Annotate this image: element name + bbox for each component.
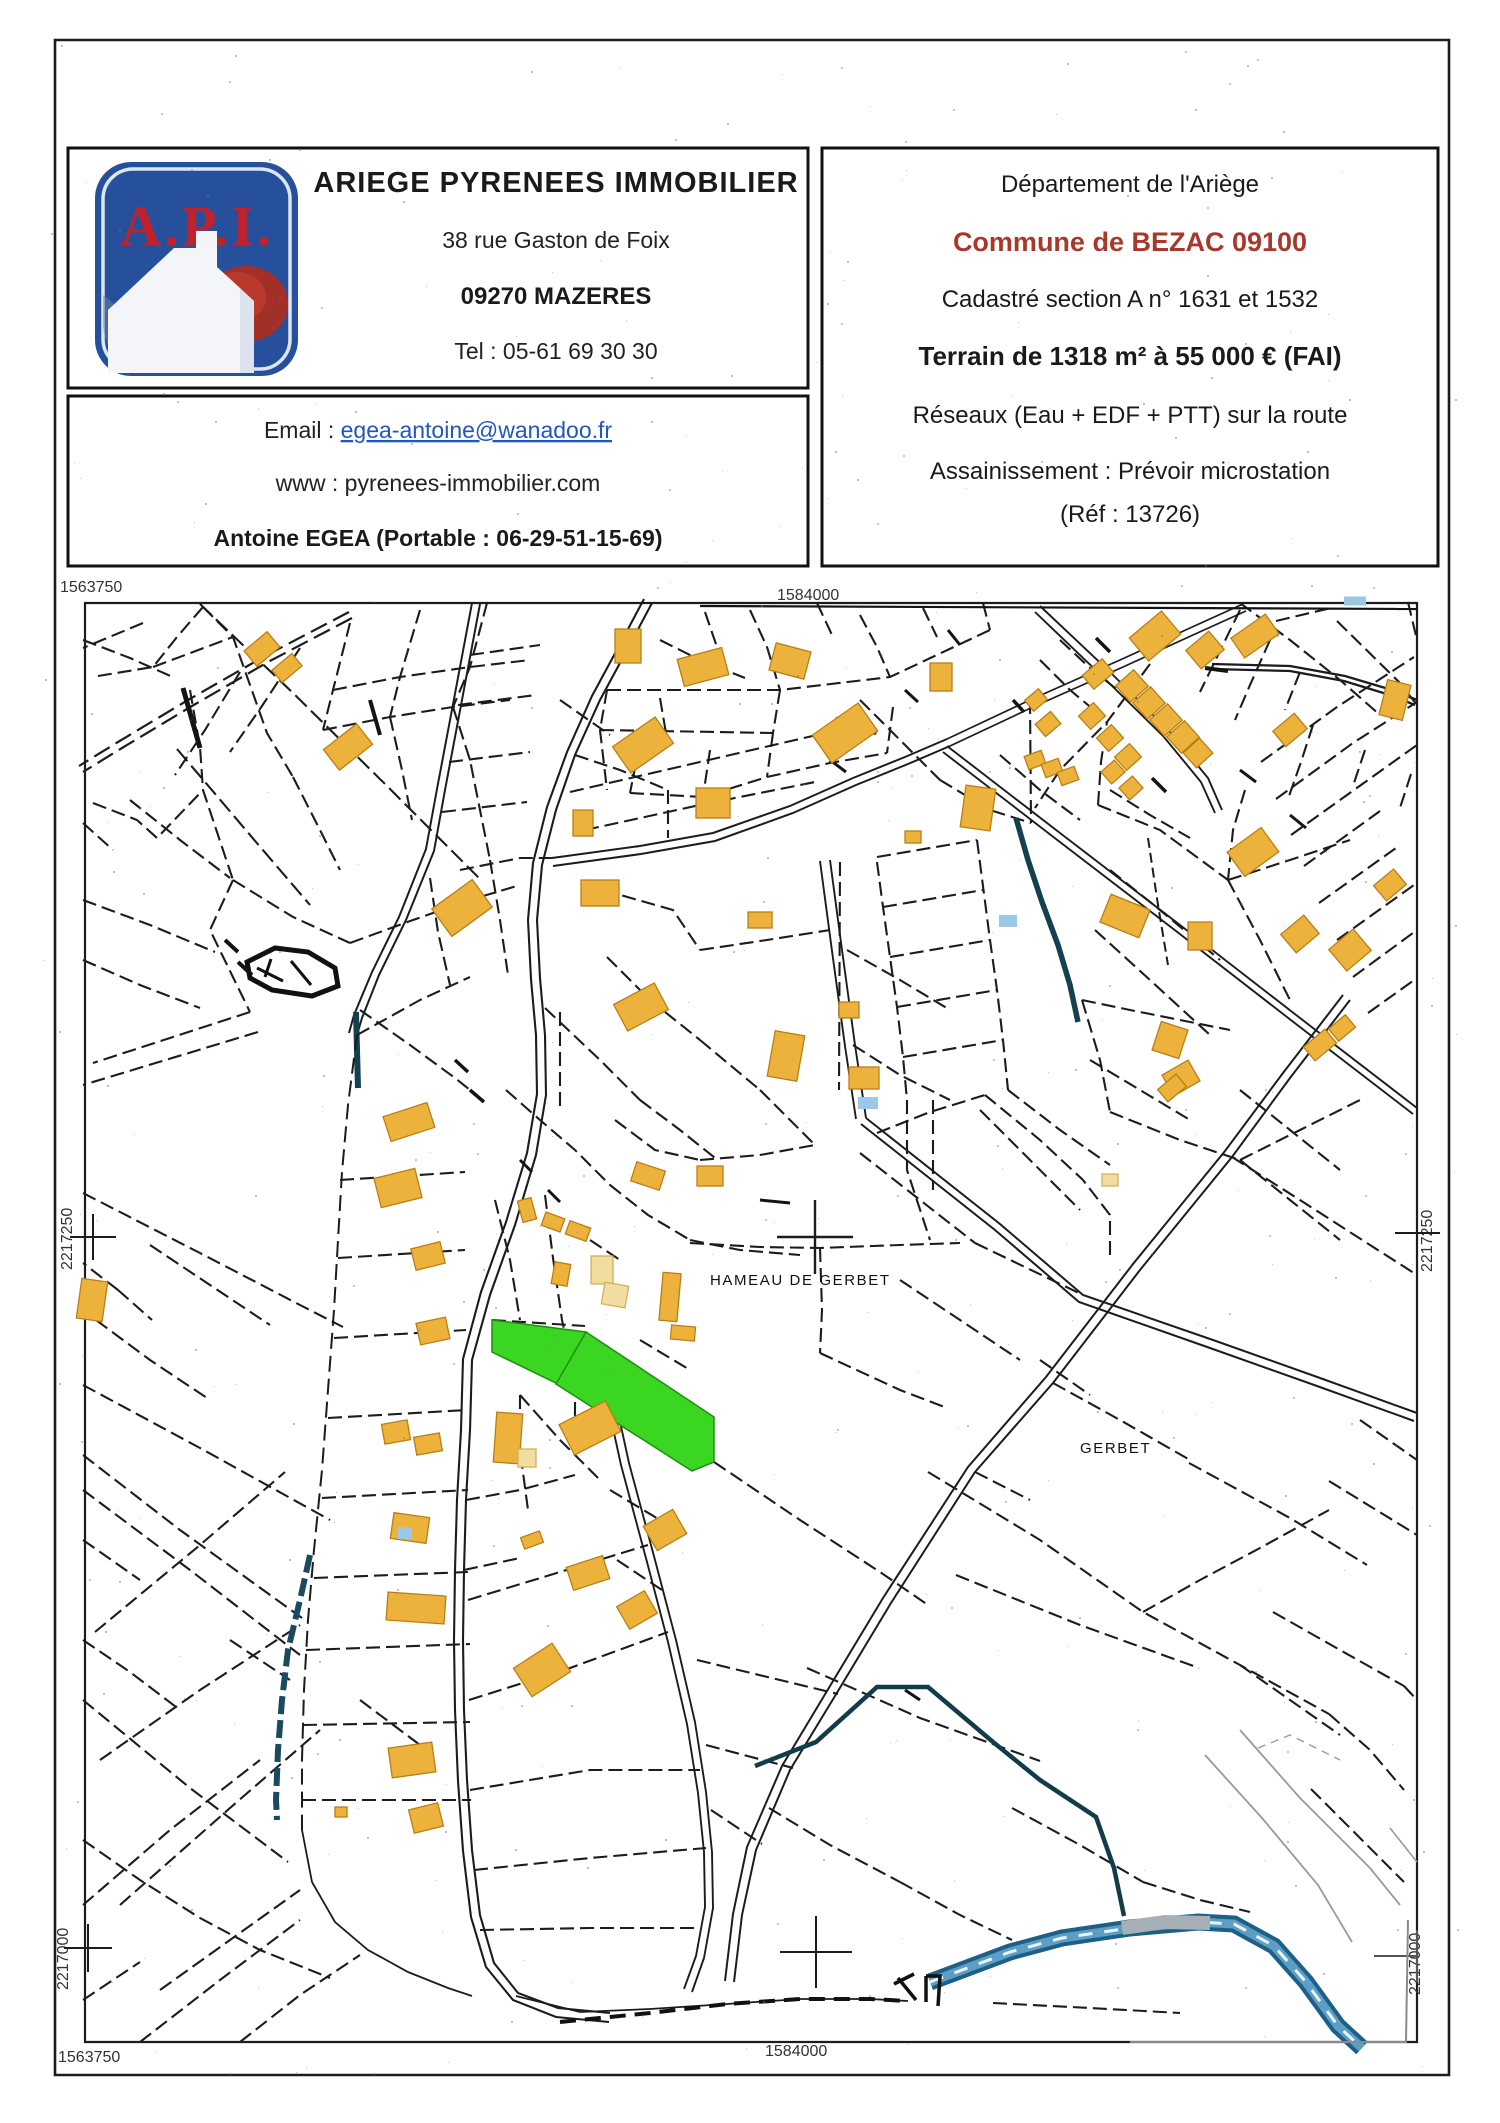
- svg-text:(Réf : 13726): (Réf : 13726): [1060, 501, 1200, 528]
- svg-text:Antoine EGEA (Portable : 06-29: Antoine EGEA (Portable : 06-29-51-15-69): [213, 525, 662, 551]
- svg-text:09270 MAZERES: 09270 MAZERES: [461, 283, 652, 310]
- svg-text:GERBET: GERBET: [1080, 1440, 1151, 1457]
- svg-text:38 rue Gaston de Foix: 38 rue Gaston de Foix: [442, 227, 670, 253]
- svg-text:Terrain de 1318 m² à 55 000 €: Terrain de 1318 m² à 55 000 € (FAI): [919, 341, 1342, 371]
- svg-text:Département de l'Ariège: Département de l'Ariège: [1001, 171, 1259, 198]
- svg-text:2217250: 2217250: [1419, 1210, 1436, 1272]
- svg-text:Email : egea-antoine@wanadoo.f: Email : egea-antoine@wanadoo.fr: [264, 417, 612, 443]
- svg-text:HAMEAU DE GERBET: HAMEAU DE GERBET: [710, 1272, 891, 1289]
- svg-text:2217000: 2217000: [55, 1928, 72, 1990]
- svg-text:www : pyrenees-immobilier.com: www : pyrenees-immobilier.com: [275, 470, 601, 496]
- svg-text:1584000: 1584000: [765, 2043, 827, 2060]
- svg-text:1563750: 1563750: [60, 579, 122, 596]
- svg-text:ARIEGE PYRENEES IMMOBILIER: ARIEGE PYRENEES IMMOBILIER: [313, 167, 798, 199]
- svg-text:2217250: 2217250: [59, 1208, 76, 1270]
- svg-text:1584000: 1584000: [777, 587, 839, 604]
- svg-text:Commune de BEZAC 09100: Commune de BEZAC 09100: [953, 227, 1307, 257]
- svg-text:Réseaux (Eau + EDF + PTT) sur: Réseaux (Eau + EDF + PTT) sur la route: [913, 402, 1348, 429]
- svg-text:1563750: 1563750: [58, 2049, 120, 2066]
- svg-text:Tel : 05-61 69 30 30: Tel : 05-61 69 30 30: [454, 338, 657, 364]
- svg-text:2217000: 2217000: [1407, 1933, 1424, 1995]
- svg-text:Assainissement : Prévoir micro: Assainissement : Prévoir microstation: [930, 458, 1330, 485]
- svg-text:Cadastré section A n° 1631 et: Cadastré section A n° 1631 et 1532: [942, 286, 1319, 313]
